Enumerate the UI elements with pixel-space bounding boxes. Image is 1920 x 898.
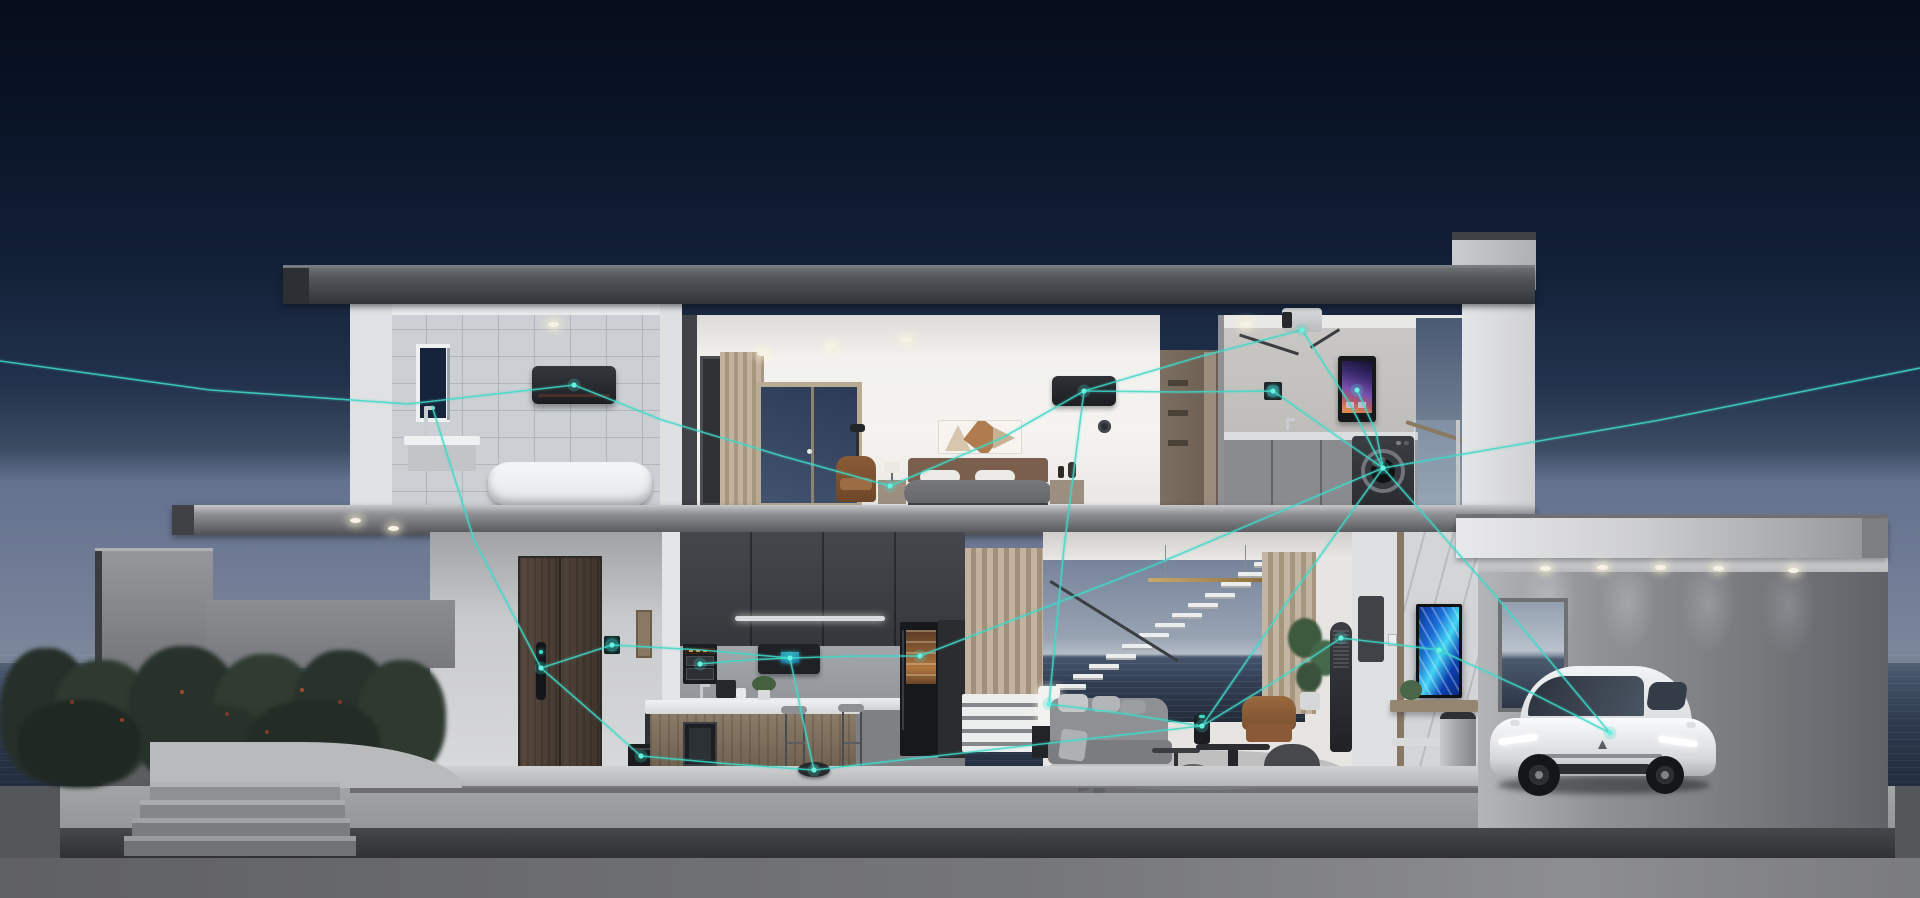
projector-rail-left	[1239, 333, 1299, 355]
entry-step-1	[150, 782, 340, 800]
slab-left-cap	[172, 505, 194, 535]
kitchen-plant-pot	[758, 690, 770, 700]
wardrobe-shelf-1	[1168, 380, 1188, 386]
mid-slab	[172, 505, 1535, 535]
living-plant-pot	[1300, 692, 1320, 710]
smart-home-scene	[0, 0, 1920, 898]
coffee-machine	[716, 680, 736, 698]
washer-control-dot-1	[1396, 441, 1401, 445]
projector-lens-face	[1282, 312, 1292, 328]
marble-wood-edge	[1397, 532, 1404, 788]
bar-stool-2-leg-a	[842, 712, 844, 768]
berry-accent	[338, 700, 342, 704]
wall-oven	[683, 644, 717, 684]
bathroom-faucet	[424, 406, 428, 438]
white-slat-bench	[962, 694, 1042, 752]
sofa-cushion-1	[1058, 694, 1088, 712]
air-purifier-tower	[1330, 622, 1352, 752]
tall-side-cabinet	[938, 620, 965, 758]
laundry-faucet-spout	[1286, 418, 1295, 421]
shower-partition	[447, 348, 450, 420]
thermostat-panel	[1264, 382, 1282, 400]
fridge-screen-grid	[906, 630, 936, 684]
downlight	[901, 337, 912, 342]
tv-screen-streaks	[1419, 607, 1459, 695]
ac-vent-accent	[538, 394, 610, 397]
bathroom-outer-wall	[350, 302, 392, 510]
vase-small	[1058, 466, 1064, 478]
downlight	[350, 518, 361, 523]
stair-tread	[1073, 674, 1103, 680]
tv-screen	[1419, 607, 1459, 695]
wardrobe-door-edge	[1204, 352, 1216, 508]
berry-accent	[120, 718, 124, 722]
car-rim-right	[1656, 766, 1674, 784]
wall-art	[938, 420, 1022, 454]
room-living	[1043, 532, 1352, 788]
stair-tread	[1221, 582, 1251, 588]
downlight	[826, 344, 837, 349]
garage-roof	[1456, 518, 1888, 558]
berry-accent	[300, 688, 304, 692]
interior-floor	[430, 766, 1480, 788]
speaker-top-line	[631, 748, 651, 750]
smart-speaker	[1194, 712, 1210, 744]
smart-fridge	[900, 622, 940, 756]
light-switch	[1388, 634, 1397, 646]
stair-tread	[1188, 603, 1218, 609]
garage-roof-right-cap	[1862, 518, 1888, 558]
roof-slab	[283, 268, 1535, 304]
vanity-counter	[404, 436, 480, 445]
robot-vacuum	[798, 762, 830, 777]
car-rim-left	[1529, 765, 1549, 785]
wine-cooler-glow	[689, 728, 711, 760]
washing-machine	[1352, 436, 1414, 508]
round-sensor	[1098, 420, 1111, 433]
under-cabinet-light	[735, 616, 885, 621]
entry-picture-frame	[636, 610, 652, 658]
ceiling-projector	[1282, 308, 1322, 332]
stair-tread	[1122, 644, 1152, 650]
console-shelf	[1390, 700, 1478, 712]
purifier-grille	[1333, 630, 1349, 670]
bar-stool-1-seat	[781, 706, 807, 714]
console-plant	[1400, 680, 1422, 700]
berry-accent	[265, 730, 269, 734]
bar-stool-2-ring	[844, 742, 860, 744]
room-bathroom	[350, 302, 682, 510]
coffee-table-pedestal	[1228, 750, 1238, 766]
slat-curtain-left	[965, 548, 1045, 698]
lock-indicator	[539, 650, 543, 654]
vase-large	[1068, 462, 1076, 478]
stair-tread	[1205, 593, 1235, 599]
sofa-throw	[1058, 728, 1088, 761]
kitchen-faucet-spout	[700, 684, 710, 687]
bar-stool-2-leg-b	[860, 712, 862, 768]
bathroom-window	[416, 344, 450, 422]
car-mirror-left	[1510, 720, 1520, 726]
smart-water-heater	[1338, 356, 1376, 422]
vertical-tv	[1416, 604, 1462, 698]
fridge-screen	[906, 630, 936, 684]
sofa-cushion-3	[1120, 700, 1146, 714]
bathtub	[488, 462, 652, 506]
entry-door	[518, 556, 602, 774]
room-bedroom	[682, 315, 1160, 510]
vacuum-button	[810, 765, 818, 770]
stair-tread	[1089, 664, 1119, 670]
coffee-table-small-leg	[1174, 753, 1178, 767]
coat-panel	[1358, 596, 1384, 662]
downlight	[1713, 566, 1724, 571]
nightstand-lamp	[884, 462, 900, 473]
smart-range-hood	[758, 644, 820, 674]
bathroom-ac-unit	[532, 366, 616, 404]
privacy-wall-top	[95, 548, 213, 551]
nightstand-right	[1050, 480, 1084, 504]
nightstand-left	[878, 480, 906, 504]
window-handle-dot	[807, 449, 812, 454]
room-closet-hallway	[1160, 350, 1218, 510]
room-laundry	[1218, 315, 1462, 510]
downlight	[1788, 568, 1799, 573]
window-mullion	[811, 387, 814, 503]
car-lower-intake	[1552, 764, 1652, 774]
bathroom-faucet-spout	[424, 406, 435, 410]
smart-trash-can	[1440, 712, 1476, 772]
leather-armchair-seat	[1246, 724, 1292, 742]
floor-lamp-head	[850, 424, 865, 432]
heater-label-1	[1346, 402, 1354, 408]
stair-tread	[1106, 654, 1136, 660]
garage-ceiling	[1478, 556, 1888, 572]
entry-step-3	[132, 818, 350, 836]
bedroom-corner-post	[682, 315, 697, 510]
sofa-cushion-2	[1092, 696, 1120, 712]
wardrobe-shelf-2	[1168, 410, 1188, 416]
door-divider	[559, 558, 561, 772]
stair-tread	[1155, 623, 1185, 629]
tower-cap	[1452, 232, 1536, 240]
bedroom-ac-unit	[1052, 376, 1116, 406]
car-wheel-left	[1518, 754, 1560, 796]
room-entry	[430, 532, 662, 788]
oven-window-2	[686, 668, 714, 680]
heater-label-2	[1358, 402, 1366, 408]
stair-tread	[1056, 684, 1086, 690]
living-plant-leaf-3	[1296, 662, 1322, 692]
stair-tread	[1172, 613, 1202, 619]
assistant-camera	[736, 688, 746, 698]
car-windshield	[1528, 676, 1644, 716]
entry-step-4	[124, 836, 356, 856]
bar-stool-1-ring	[787, 742, 805, 744]
bar-stool-1-leg-b	[803, 714, 805, 768]
washer-door	[1361, 449, 1405, 493]
cut-wall-bath-bedroom	[660, 302, 682, 510]
panel-screen	[607, 639, 617, 650]
art-shape-3	[993, 427, 1015, 449]
downlight	[1240, 322, 1251, 327]
oven-display	[685, 648, 715, 654]
downlight	[388, 526, 399, 531]
kitchen-island-top	[645, 700, 860, 714]
vanity-cabinet	[408, 445, 476, 471]
balustrade-post	[1456, 420, 1460, 508]
oven-display-dashes	[689, 650, 709, 652]
entry-control-panel	[604, 636, 620, 654]
entry-step-2	[140, 800, 345, 818]
bar-stool-1-leg-a	[785, 714, 787, 768]
car-wheel-right	[1646, 756, 1684, 794]
car-side-window	[1646, 682, 1688, 710]
oven-window-1	[686, 656, 714, 666]
fridge-handle	[902, 630, 904, 730]
smart-door-lock	[536, 642, 546, 700]
car-grille-line	[1542, 754, 1662, 758]
bush	[18, 700, 140, 788]
thermostat-screen	[1268, 386, 1278, 396]
trash-lid	[1440, 712, 1476, 719]
berry-accent	[180, 690, 184, 694]
car-mirror-right	[1686, 722, 1696, 728]
wine-cooler	[683, 722, 717, 766]
armchair-cushion	[840, 478, 872, 490]
roof-left-cap	[283, 268, 309, 304]
white-suv-car	[1490, 660, 1720, 800]
berry-accent	[70, 700, 74, 704]
downlight	[1655, 565, 1666, 570]
foreground-ground	[0, 858, 1920, 898]
hood-screen	[781, 652, 799, 663]
downlight	[757, 351, 768, 356]
bar-stool-2-seat	[838, 704, 864, 712]
downlight	[548, 322, 559, 327]
speaker-led	[1199, 715, 1205, 718]
downlight	[1540, 566, 1551, 571]
floor2-right-wall	[1462, 302, 1535, 510]
nightstand-lamp-stem	[891, 473, 893, 481]
washer-control-dot-2	[1404, 441, 1409, 445]
berry-accent	[225, 712, 229, 716]
wardrobe-shelf-3	[1168, 440, 1188, 446]
bedroom-armchair	[836, 456, 876, 502]
downlight	[1597, 565, 1608, 570]
